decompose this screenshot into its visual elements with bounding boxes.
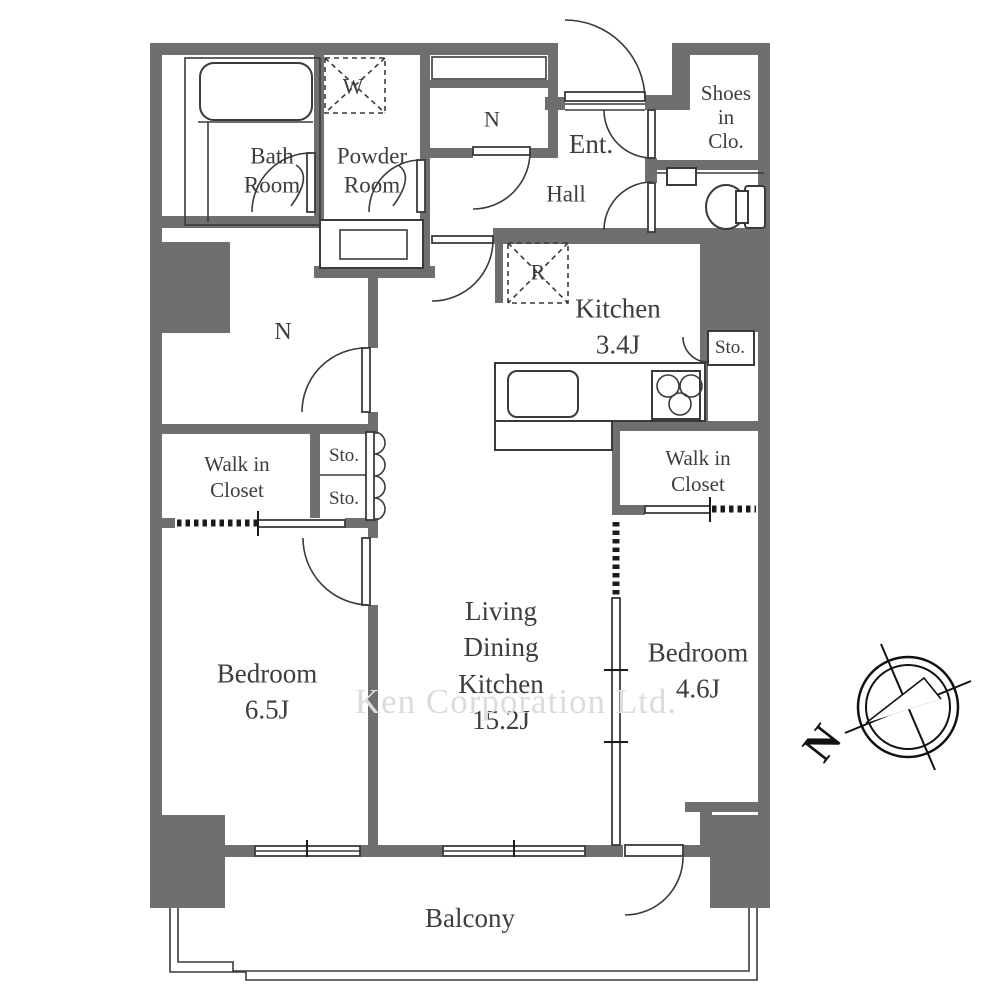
toilet-icon bbox=[657, 168, 765, 229]
washbasin-icon bbox=[320, 220, 423, 268]
sliding-elements bbox=[177, 497, 756, 857]
kitchen-storage-box bbox=[708, 331, 754, 365]
kitchen-counter-icon bbox=[495, 363, 705, 450]
top-closet-shelf bbox=[432, 57, 546, 79]
balcony-railing bbox=[170, 908, 757, 980]
washing-machine-icon bbox=[325, 58, 385, 113]
floor-plan-drawing bbox=[0, 0, 1000, 1000]
compass-icon bbox=[845, 644, 971, 770]
refrigerator-icon bbox=[508, 243, 568, 303]
floor-plan: Bath Room Powder Room N Ent. Hall Shoes … bbox=[0, 0, 1000, 1000]
